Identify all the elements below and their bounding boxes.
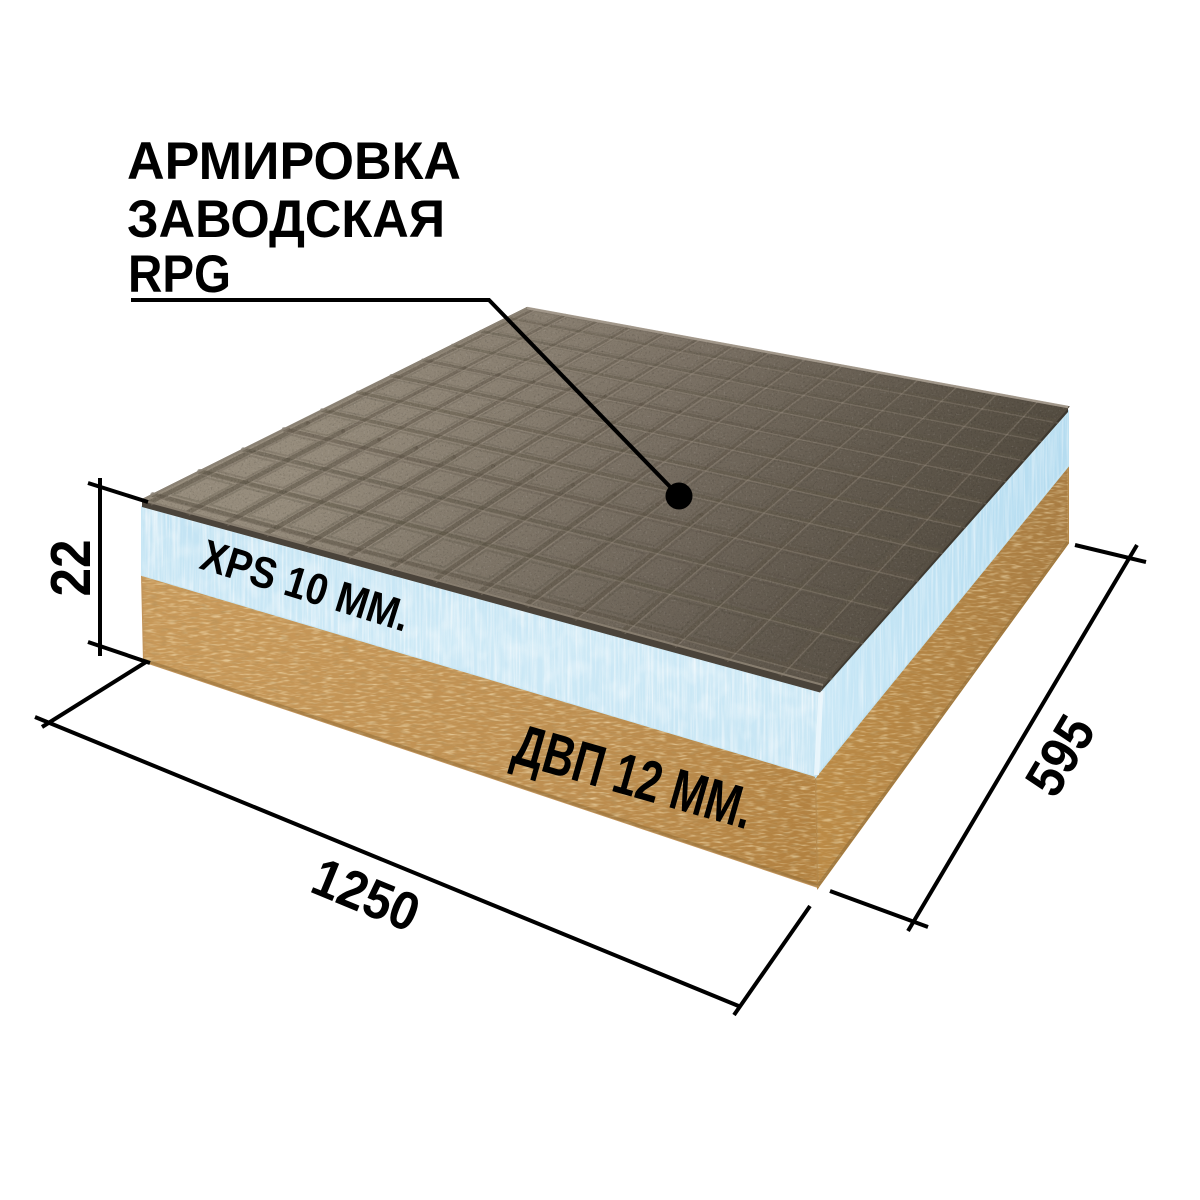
svg-text:АРМИРОВКА: АРМИРОВКА [127,132,461,191]
svg-text:RPG: RPG [128,245,231,304]
svg-text:22: 22 [39,540,103,597]
svg-text:ЗАВОДСКАЯ: ЗАВОДСКАЯ [127,190,445,249]
